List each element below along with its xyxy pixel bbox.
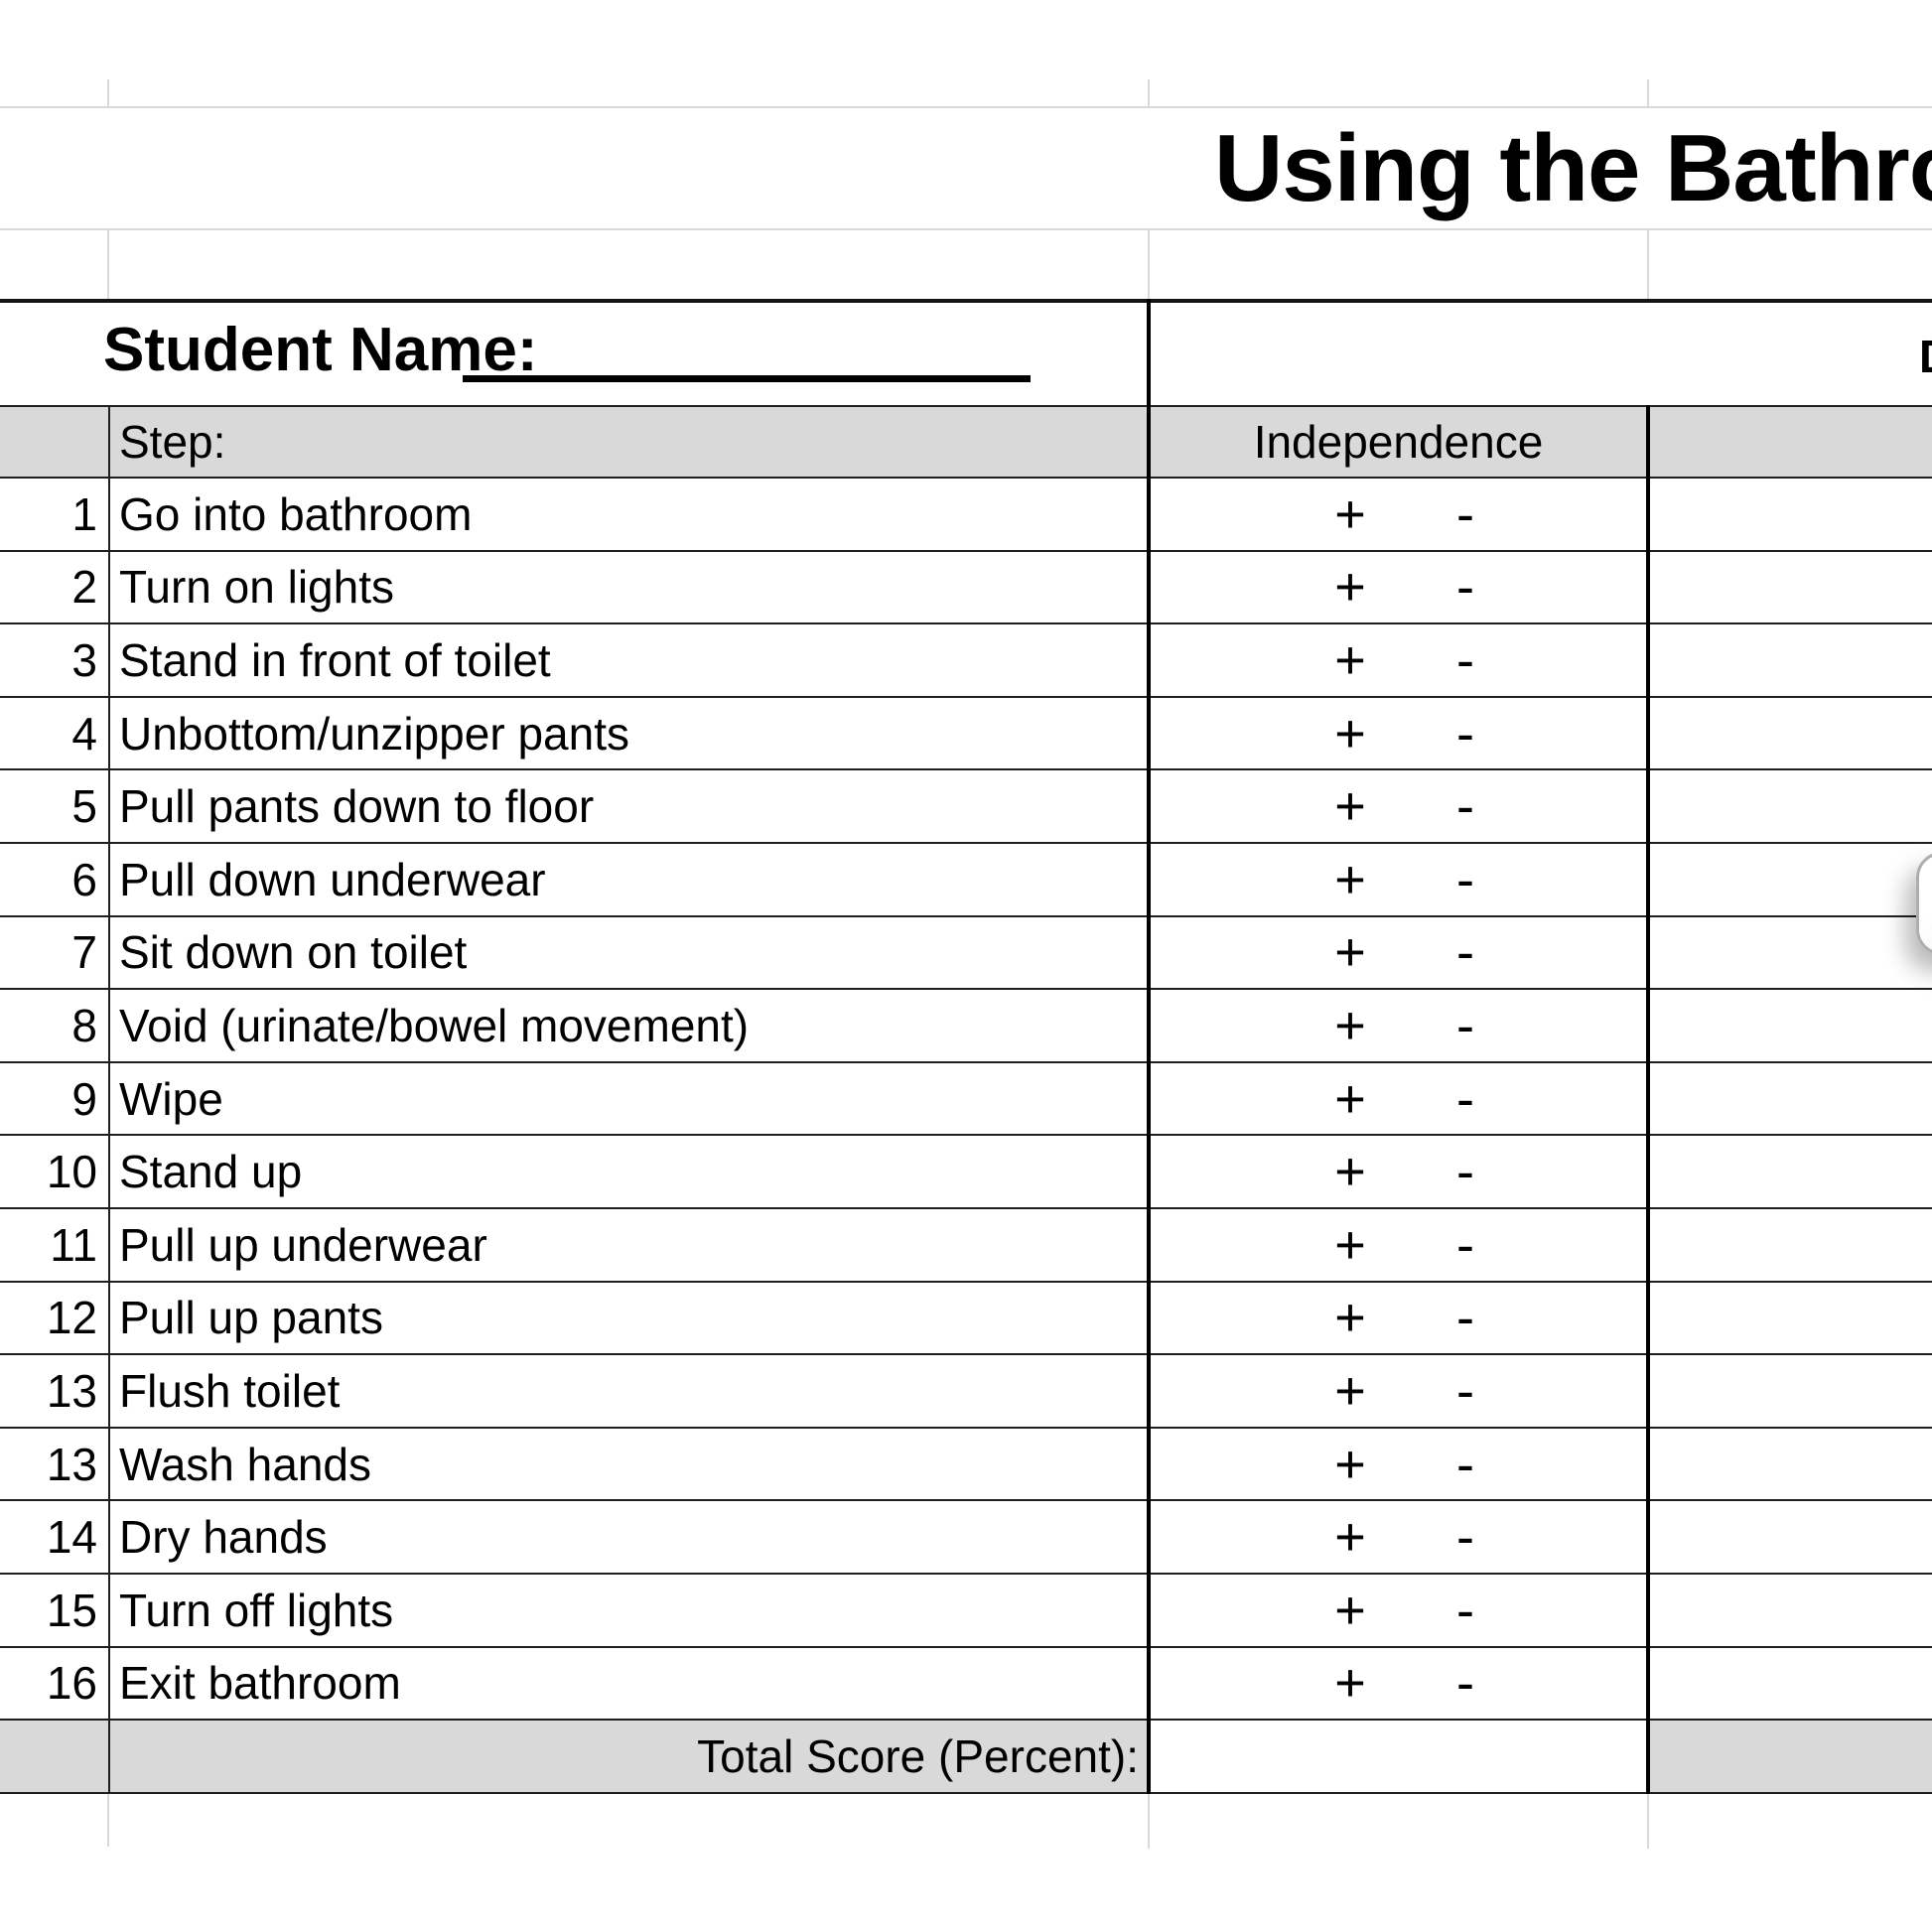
independence-plus-mark[interactable]: + <box>1301 1283 1400 1354</box>
step-number-cell[interactable]: 8 <box>0 990 97 1061</box>
total-score-row: Total Score (Percent): <box>0 1721 1932 1794</box>
independence-minus-mark[interactable]: - <box>1416 1355 1515 1427</box>
step-number-cell[interactable]: 7 <box>0 917 97 989</box>
independence-plus-mark[interactable]: + <box>1301 1501 1400 1573</box>
table-row: 11Pull up underwear+- <box>0 1209 1932 1283</box>
table-row: 2Turn on lights+- <box>0 552 1932 625</box>
right-column-border <box>1646 405 1650 1794</box>
independence-plus-mark[interactable]: + <box>1301 1063 1400 1135</box>
gridline <box>0 228 1932 230</box>
step-number-cell[interactable]: 14 <box>0 1501 97 1573</box>
total-row-fill-right <box>1647 1721 1932 1792</box>
independence-plus-mark[interactable]: + <box>1301 1429 1400 1500</box>
independence-plus-mark[interactable]: + <box>1301 844 1400 915</box>
step-text-cell[interactable]: Sit down on toilet <box>119 917 1142 989</box>
independence-minus-mark[interactable]: - <box>1416 844 1515 915</box>
step-number-cell[interactable]: 10 <box>0 1136 97 1207</box>
gridline <box>1148 79 1150 106</box>
independence-minus-mark[interactable]: - <box>1416 1063 1515 1135</box>
independence-plus-mark[interactable]: + <box>1301 552 1400 623</box>
table-row: 6Pull down underwear+- <box>0 844 1932 917</box>
step-text-cell[interactable]: Flush toilet <box>119 1355 1142 1427</box>
sheet-title: Using the Bathroom <box>1214 121 1932 216</box>
independence-plus-mark[interactable]: + <box>1301 624 1400 696</box>
gridline <box>0 106 1932 108</box>
independence-plus-mark[interactable]: + <box>1301 917 1400 989</box>
independence-plus-mark[interactable]: + <box>1301 1136 1400 1207</box>
independence-minus-mark[interactable]: - <box>1416 1575 1515 1646</box>
step-number-cell[interactable]: 9 <box>0 1063 97 1135</box>
table-row: 4Unbottom/unzipper pants+- <box>0 698 1932 771</box>
step-number-cell[interactable]: 13 <box>0 1355 97 1427</box>
step-number-cell[interactable]: 15 <box>0 1575 97 1646</box>
independence-plus-mark[interactable]: + <box>1301 698 1400 769</box>
table-row: 16Exit bathroom+- <box>0 1648 1932 1722</box>
step-text-cell[interactable]: Stand in front of toilet <box>119 624 1142 696</box>
table-row: 8Void (urinate/bowel movement)+- <box>0 990 1932 1063</box>
table-row: 1Go into bathroom+- <box>0 479 1932 552</box>
independence-minus-mark[interactable]: - <box>1416 624 1515 696</box>
table-row: 5Pull pants down to floor+- <box>0 770 1932 844</box>
step-number-cell[interactable]: 13 <box>0 1429 97 1500</box>
step-text-cell[interactable]: Pull pants down to floor <box>119 770 1142 842</box>
table-row: 10Stand up+- <box>0 1136 1932 1209</box>
table-row: 7Sit down on toilet+- <box>0 917 1932 991</box>
table-row: 3Stand in front of toilet+- <box>0 624 1932 698</box>
table-row: 13Flush toilet+- <box>0 1355 1932 1429</box>
total-score-cell[interactable] <box>1151 1721 1645 1792</box>
independence-minus-mark[interactable]: - <box>1416 1209 1515 1281</box>
independence-plus-mark[interactable]: + <box>1301 479 1400 550</box>
independence-plus-mark[interactable]: + <box>1301 770 1400 842</box>
independence-minus-mark[interactable]: - <box>1416 770 1515 842</box>
independence-minus-mark[interactable]: - <box>1416 917 1515 989</box>
gridline <box>1647 228 1649 299</box>
date-label: Date: <box>1919 334 1932 379</box>
number-column-border <box>108 405 110 1794</box>
gridline <box>107 228 109 299</box>
gridline <box>1148 1794 1150 1849</box>
independence-minus-mark[interactable]: - <box>1416 1429 1515 1500</box>
step-text-cell[interactable]: Exit bathroom <box>119 1648 1142 1720</box>
independence-plus-mark[interactable]: + <box>1301 1209 1400 1281</box>
independence-minus-mark[interactable]: - <box>1416 479 1515 550</box>
student-name-field[interactable] <box>463 375 1031 382</box>
step-number-cell[interactable]: 4 <box>0 698 97 769</box>
independence-minus-mark[interactable]: - <box>1416 1648 1515 1720</box>
gridline <box>1148 228 1150 299</box>
column-header-independence[interactable]: Independence <box>1149 407 1648 477</box>
independence-minus-mark[interactable]: - <box>1416 1283 1515 1354</box>
step-number-cell[interactable]: 11 <box>0 1209 97 1281</box>
independence-plus-mark[interactable]: + <box>1301 1575 1400 1646</box>
table-row: 13Wash hands+- <box>0 1429 1932 1502</box>
step-text-cell[interactable]: Pull up underwear <box>119 1209 1142 1281</box>
step-text-cell[interactable]: Void (urinate/bowel movement) <box>119 990 1142 1061</box>
step-text-cell[interactable]: Stand up <box>119 1136 1142 1207</box>
step-number-cell[interactable]: 16 <box>0 1648 97 1720</box>
table-row: 14Dry hands+- <box>0 1501 1932 1575</box>
step-text-cell[interactable]: Dry hands <box>119 1501 1142 1573</box>
step-number-cell[interactable]: 2 <box>0 552 97 623</box>
independence-minus-mark[interactable]: - <box>1416 990 1515 1061</box>
floating-scroll-thumb[interactable] <box>1916 852 1932 955</box>
spreadsheet-viewport: Using the Bathroom Student Name: Date: S… <box>0 0 1932 1932</box>
gridline <box>107 1794 109 1847</box>
table-row: 9Wipe+- <box>0 1063 1932 1137</box>
step-number-cell[interactable]: 1 <box>0 479 97 550</box>
independence-plus-mark[interactable]: + <box>1301 1648 1400 1720</box>
independence-minus-mark[interactable]: - <box>1416 1136 1515 1207</box>
column-header-step[interactable]: Step: <box>119 407 225 477</box>
table-header-row: Step: Independence <box>0 405 1932 479</box>
gridline <box>1647 79 1649 106</box>
step-text-cell[interactable]: Pull up pants <box>119 1283 1142 1354</box>
step-text-cell[interactable]: Unbottom/unzipper pants <box>119 698 1142 769</box>
independence-minus-mark[interactable]: - <box>1416 552 1515 623</box>
independence-column-border <box>1147 299 1151 1794</box>
independence-plus-mark[interactable]: + <box>1301 1355 1400 1427</box>
independence-minus-mark[interactable]: - <box>1416 698 1515 769</box>
step-text-cell[interactable]: Turn off lights <box>119 1575 1142 1646</box>
independence-plus-mark[interactable]: + <box>1301 990 1400 1061</box>
step-number-cell[interactable]: 6 <box>0 844 97 915</box>
step-rows-container: 1Go into bathroom+-2Turn on lights+-3Sta… <box>0 479 1932 1721</box>
step-text-cell[interactable]: Go into bathroom <box>119 479 1142 550</box>
total-score-label: Total Score (Percent): <box>0 1721 1139 1792</box>
table-row: 15Turn off lights+- <box>0 1575 1932 1648</box>
gridline <box>1647 1794 1649 1849</box>
step-number-cell[interactable]: 5 <box>0 770 97 842</box>
independence-minus-mark[interactable]: - <box>1416 1501 1515 1573</box>
student-name-label: Student Name: <box>103 320 537 381</box>
step-number-cell[interactable]: 12 <box>0 1283 97 1354</box>
gridline <box>107 79 109 106</box>
step-text-cell[interactable]: Turn on lights <box>119 552 1142 623</box>
step-text-cell[interactable]: Wipe <box>119 1063 1142 1135</box>
step-text-cell[interactable]: Wash hands <box>119 1429 1142 1500</box>
step-text-cell[interactable]: Pull down underwear <box>119 844 1142 915</box>
table-row: 12Pull up pants+- <box>0 1283 1932 1356</box>
step-number-cell[interactable]: 3 <box>0 624 97 696</box>
table-top-border <box>0 299 1932 303</box>
